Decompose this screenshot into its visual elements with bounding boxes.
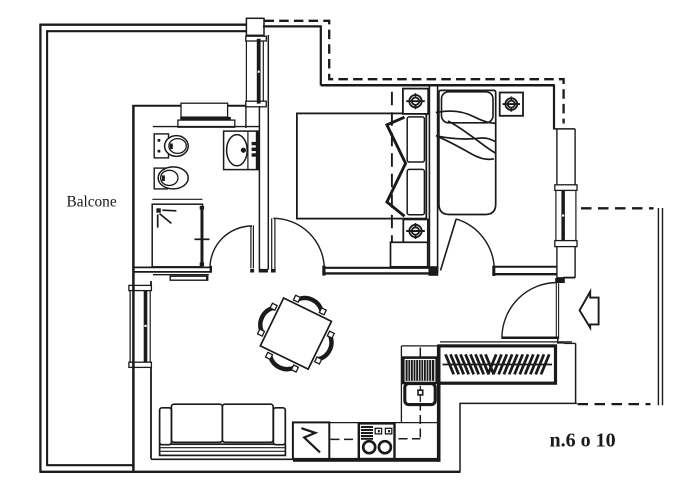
svg-text:n.6 o 10: n.6 o 10	[550, 430, 616, 452]
svg-text:Balcone: Balcone	[67, 194, 117, 211]
